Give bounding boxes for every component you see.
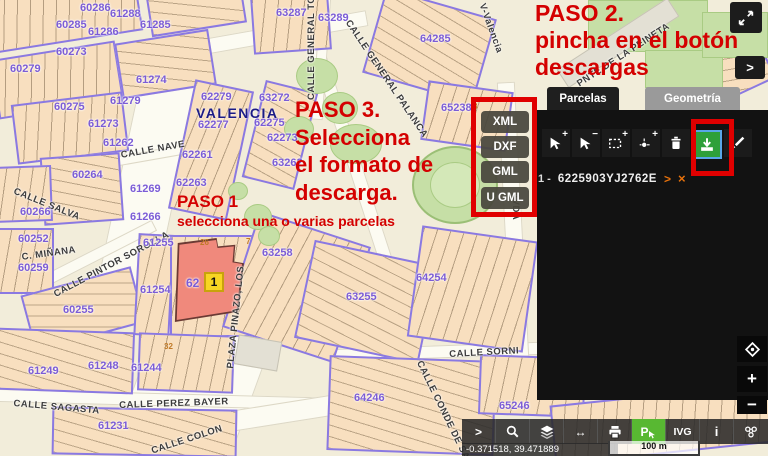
- annotation-paso3: PASO 3. Selecciona el formato de descarg…: [295, 96, 433, 206]
- cadastral-block-number: 61248: [88, 360, 119, 372]
- park-circle-inner: [430, 162, 480, 208]
- cadastral-block-number: 63272: [259, 92, 290, 104]
- cadastral-block-number: 60259: [18, 262, 49, 274]
- park: [296, 58, 338, 94]
- cadastral-block-number: 61255: [143, 237, 174, 249]
- add-point-selection-button[interactable]: +: [632, 129, 660, 157]
- annotation-paso2: PASO 2. pincha en el botón descargas: [535, 0, 738, 81]
- cadastral-block-number: 62263: [176, 177, 207, 189]
- collaboration-button[interactable]: [734, 419, 768, 444]
- cadastral-block-number: 64285: [420, 33, 451, 45]
- cadastral-block-number: 61269: [130, 183, 161, 195]
- cadastral-block-number: 63255: [346, 291, 377, 303]
- cadastral-block-number: 61244: [131, 362, 162, 374]
- catastro-map-viewer: 62 1 CALLE GENERAL TOVACALLE GENERAL PAL…: [0, 0, 768, 456]
- cadastral-block-number: 60255: [63, 304, 94, 316]
- cadastral-block-number: 60266: [20, 206, 51, 218]
- remove-parcel-pointer-button[interactable]: −: [572, 129, 600, 157]
- parcel-delete-icon[interactable]: ×: [678, 173, 686, 185]
- toolbar-expand-button[interactable]: >: [462, 419, 496, 444]
- cadastral-block-number: 62261: [182, 149, 213, 161]
- info-button[interactable]: i: [700, 419, 734, 444]
- parcel-expand-icon[interactable]: >: [664, 172, 671, 186]
- cadastral-block-number: 61274: [136, 74, 167, 86]
- selected-parcel-marker: 1: [204, 272, 224, 292]
- clear-selection-trash-button[interactable]: [662, 129, 690, 157]
- cadastral-block-number: 63258: [262, 247, 293, 259]
- house-number: 26: [200, 238, 209, 247]
- cadastral-block-number: 61286: [88, 26, 119, 38]
- panel-toolbar: + − + +: [542, 129, 752, 159]
- house-number: 7: [246, 237, 250, 246]
- format-ugml-button[interactable]: U GML: [481, 187, 529, 209]
- format-xml-button[interactable]: XML: [481, 111, 529, 133]
- cadastral-block-number: 63289: [318, 12, 349, 24]
- cadastral-block-number: 60286: [80, 2, 111, 14]
- cadastral-block-number: 61254: [140, 284, 171, 296]
- cadastral-block-number: 60252: [18, 233, 49, 245]
- panel-toggle-button[interactable]: >: [735, 56, 765, 79]
- cadastral-block-number: 65246: [499, 400, 530, 412]
- park: [258, 226, 280, 246]
- cadastral-block-number: 61273: [88, 118, 119, 130]
- cadastral-block-number: 61285: [140, 19, 171, 31]
- cadastral-block-number: 63287: [276, 7, 307, 19]
- house-number: 32: [164, 342, 173, 351]
- cadastral-block-number: 61249: [28, 365, 59, 377]
- add-parcel-pointer-button[interactable]: +: [542, 129, 570, 157]
- selected-parcel-block-number: 62: [186, 276, 199, 290]
- format-gml-button[interactable]: GML: [481, 161, 529, 183]
- street-name-label: CALLE GENERAL TOVA: [306, 0, 317, 100]
- search-button[interactable]: [496, 419, 530, 444]
- parcel-list-row: 1 - 6225903YJ2762E > ×: [538, 172, 686, 186]
- cadastral-block-number: 61288: [110, 8, 141, 20]
- scale-bar: 100 m: [608, 441, 700, 456]
- cadastral-block-number: 60275: [54, 101, 85, 113]
- annotation-paso1-subtitle: selecciona una o varias parcelas: [177, 213, 395, 229]
- annotation-paso1-title: PASO 1: [177, 192, 238, 212]
- cadastral-block-number: 60285: [56, 19, 87, 31]
- coordinates-readout: -0.371518, 39.471889: [462, 443, 618, 456]
- cadastral-block-number: 60264: [72, 169, 103, 181]
- edit-parcel-button[interactable]: [724, 129, 752, 157]
- layers-button[interactable]: [530, 419, 564, 444]
- parcel-block: [407, 225, 538, 352]
- cadastral-block-number: 62273: [267, 132, 298, 144]
- tab-geometria[interactable]: Geometría: [645, 87, 740, 110]
- zoom-out-button[interactable]: −: [737, 396, 767, 414]
- cadastral-block-number: 60279: [10, 63, 41, 75]
- measure-button[interactable]: ↔: [564, 419, 598, 444]
- tab-parcelas[interactable]: Parcelas: [547, 87, 619, 110]
- cadastral-block-number: 65238: [441, 102, 472, 114]
- house-number: 8: [473, 102, 477, 111]
- cadastral-block-number: 61266: [130, 211, 161, 223]
- parcel-reference: 6225903YJ2762E: [558, 173, 657, 185]
- format-dxf-button[interactable]: DXF: [481, 136, 529, 158]
- cadastral-block-number: 60273: [56, 46, 87, 58]
- cadastral-block-number: 61279: [110, 95, 141, 107]
- center-map-button[interactable]: [737, 336, 767, 362]
- add-rectangle-selection-button[interactable]: +: [602, 129, 630, 157]
- cadastral-block-number: 61231: [98, 420, 129, 432]
- city-label: VALENCIA: [196, 105, 279, 121]
- cadastral-block-number: 64254: [416, 272, 447, 284]
- download-parcels-button[interactable]: [692, 130, 722, 159]
- zoom-in-button[interactable]: +: [737, 366, 767, 392]
- cadastral-block-number: 62279: [201, 91, 232, 103]
- cadastral-block-number: 61262: [103, 137, 134, 149]
- parcel-index: 1 -: [538, 173, 551, 185]
- cadastral-block-number: 64246: [354, 392, 385, 404]
